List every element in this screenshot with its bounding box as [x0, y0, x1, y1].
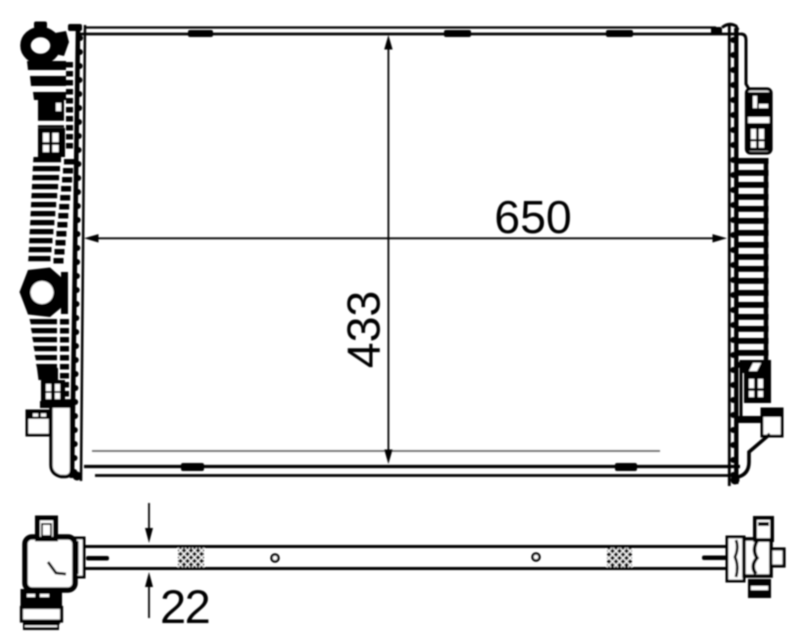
svg-text:433: 433: [338, 291, 390, 369]
svg-text:22: 22: [160, 580, 209, 633]
svg-text:650: 650: [494, 191, 572, 243]
